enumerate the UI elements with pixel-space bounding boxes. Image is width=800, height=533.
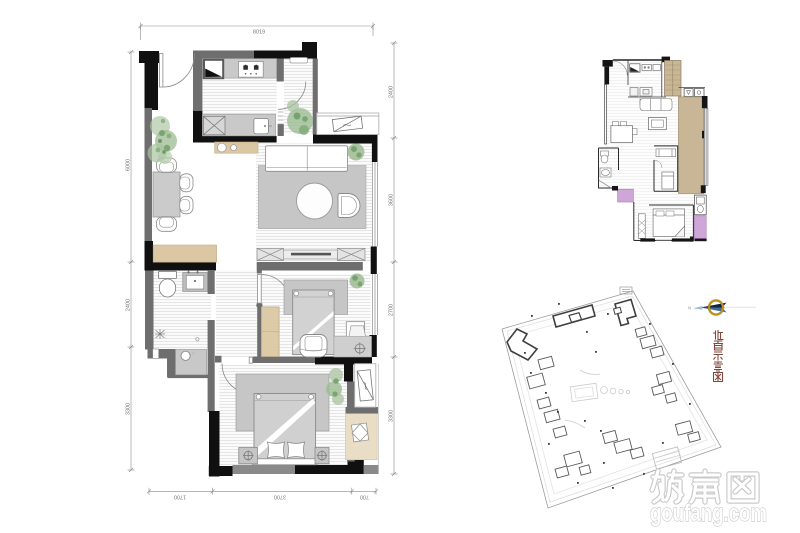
svg-text:goufang.com: goufang.com <box>650 500 767 527</box>
svg-text:N: N <box>688 306 691 311</box>
svg-text:3300: 3300 <box>389 410 395 422</box>
svg-text:3300: 3300 <box>126 403 132 415</box>
svg-text:8019: 8019 <box>253 30 265 36</box>
svg-text:3700: 3700 <box>274 494 286 500</box>
svg-text:1700: 1700 <box>174 494 186 500</box>
svg-text:700: 700 <box>360 494 369 500</box>
svg-text:6000: 6000 <box>126 159 132 171</box>
svg-text:2400: 2400 <box>389 86 395 98</box>
svg-text:3600: 3600 <box>389 194 395 206</box>
svg-text:2400: 2400 <box>126 299 132 311</box>
svg-text:2700: 2700 <box>389 304 395 316</box>
